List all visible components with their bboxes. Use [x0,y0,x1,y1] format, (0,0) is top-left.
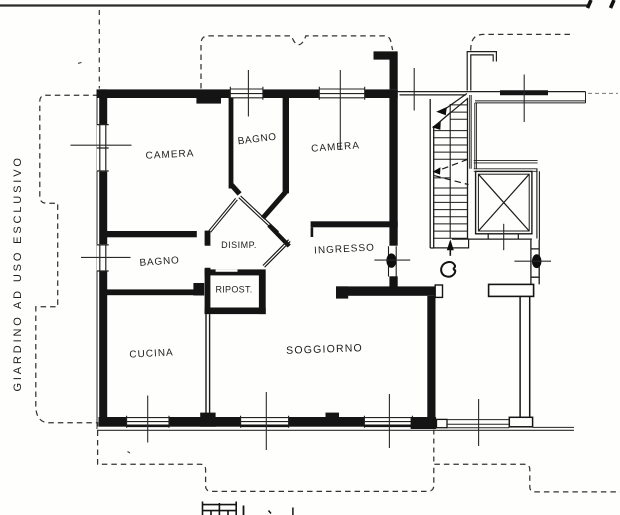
svg-text:DISIMP.: DISIMP. [221,240,257,250]
svg-text:GIARDINO AD USO ESCLUSIVO: GIARDINO AD USO ESCLUSIVO [12,155,24,391]
svg-text:RIPOST.: RIPOST. [215,285,252,295]
svg-text:CUCINA: CUCINA [129,347,174,360]
